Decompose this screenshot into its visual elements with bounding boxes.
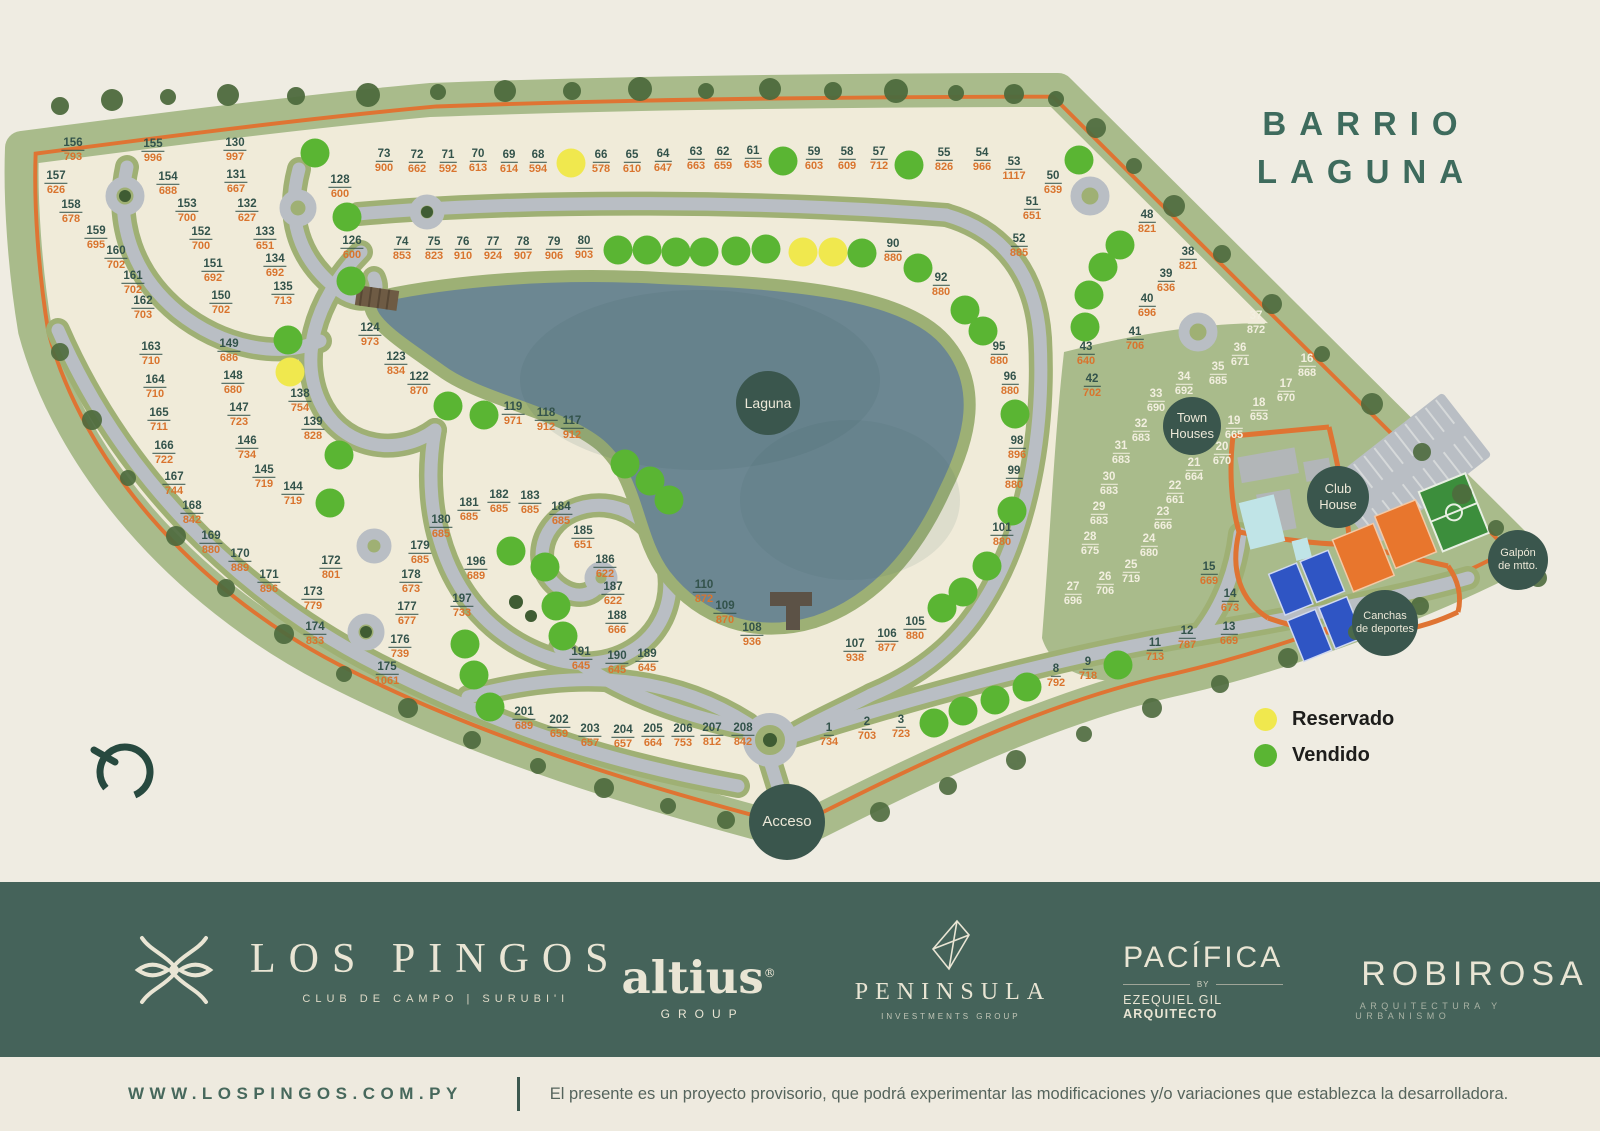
title-line1: BARRIO (1230, 100, 1490, 148)
lot-22: 22661 (1166, 476, 1184, 507)
status-dot-reserved (276, 358, 305, 387)
lot-162: 162703 (131, 291, 154, 322)
lot-172: 172801 (319, 551, 342, 582)
lot-203: 203657 (578, 719, 601, 750)
lot-173: 173779 (301, 582, 324, 613)
lot-8: 8792 (1047, 659, 1065, 690)
logo-pacifica: PACÍFICA BY EZEQUIEL GIL ARQUITECTO (1123, 941, 1283, 1021)
logo-robirosa: ROBIROSA ARQUITECTURA Y URBANISMO (1355, 955, 1588, 1021)
map-label-laguna: Laguna (736, 371, 800, 435)
lot-169: 169880 (199, 526, 222, 557)
lot-157: 157626 (44, 166, 67, 197)
robirosa-name: ROBIROSA (1355, 955, 1588, 994)
lot-35: 35685 (1209, 357, 1227, 388)
peninsula-kite-icon (927, 919, 971, 971)
status-dot-sold (604, 236, 633, 265)
map-label-canchas: Canchasde deportes (1352, 590, 1418, 656)
status-dot-sold (973, 552, 1002, 581)
page: 1567931559961309971576261546881316671286… (0, 0, 1600, 1131)
lot-105: 105880 (903, 612, 926, 643)
lot-75: 75823 (425, 232, 443, 263)
lot-207: 207812 (700, 718, 723, 749)
lot-3: 3723 (892, 710, 910, 741)
lot-123: 123834 (384, 347, 407, 378)
status-dot-sold (904, 254, 933, 283)
lot-98: 98896 (1008, 431, 1026, 462)
lot-124: 124973 (358, 318, 381, 349)
altius-name: altius (622, 951, 764, 1004)
status-dot-sold (325, 441, 354, 470)
lot-76: 76910 (454, 232, 472, 263)
lot-182: 182685 (487, 485, 510, 516)
brand-name: LOS PINGOS (250, 935, 622, 983)
lot-132: 132627 (235, 194, 258, 225)
divider (517, 1077, 520, 1111)
lot-39: 39636 (1157, 264, 1175, 295)
lot-170: 170889 (228, 544, 251, 575)
status-dot-sold (722, 237, 751, 266)
lot-171: 171896 (257, 565, 280, 596)
status-dot-sold (1075, 281, 1104, 310)
lot-153: 153700 (175, 194, 198, 225)
lot-184: 184685 (549, 497, 572, 528)
lot-190: 190645 (605, 646, 628, 677)
lot-15: 15669 (1200, 557, 1218, 588)
lot-92: 92880 (932, 268, 950, 299)
lot-134: 134692 (263, 249, 286, 280)
lot-183: 183685 (518, 486, 541, 517)
lot-64: 64647 (654, 144, 672, 175)
status-dot-sold (333, 203, 362, 232)
lot-155: 155996 (141, 134, 164, 165)
lot-196: 196689 (464, 552, 487, 583)
bottom-bar: WWW.LOSPINGOS.COM.PY El presente es un p… (0, 1057, 1600, 1131)
lot-181: 181685 (457, 493, 480, 524)
lot-176: 176739 (388, 630, 411, 661)
lot-55: 55826 (935, 143, 953, 174)
logo-altius: altius® GROUP (622, 958, 776, 1021)
lot-11: 11713 (1146, 633, 1164, 664)
lot-68: 68594 (529, 145, 547, 176)
status-dot-sold (769, 147, 798, 176)
lot-145: 145719 (252, 460, 275, 491)
lot-138: 138754 (288, 384, 311, 415)
status-dot-sold (301, 139, 330, 168)
lot-152: 152700 (189, 222, 212, 253)
status-dot-sold (274, 326, 303, 355)
lot-57: 57712 (870, 142, 888, 173)
lot-21: 21664 (1185, 453, 1203, 484)
lot-41: 41706 (1126, 322, 1144, 353)
lot-131: 131667 (224, 165, 247, 196)
status-dot-sold (1013, 673, 1042, 702)
lot-19: 19665 (1225, 411, 1243, 442)
lot-164: 164710 (143, 370, 166, 401)
lot-51: 51651 (1023, 192, 1041, 223)
status-dot-sold (531, 553, 560, 582)
logo-peninsula: PENINSULA INVESTMENTS GROUP (848, 919, 1051, 1021)
status-dot-reserved (789, 238, 818, 267)
lot-101: 101880 (990, 518, 1013, 549)
status-dot-sold (895, 151, 924, 180)
page-title: BARRIO LAGUNA (1230, 100, 1490, 196)
status-dot-sold (611, 450, 640, 479)
disclaimer-text: El presente es un proyecto provisorio, q… (550, 1085, 1508, 1104)
lot-13: 13669 (1220, 617, 1238, 648)
lot-62: 62659 (714, 142, 732, 173)
lot-31: 31683 (1112, 436, 1130, 467)
lot-78: 78907 (514, 232, 532, 263)
lot-9: 9718 (1079, 652, 1097, 683)
brand-tagline: CLUB DE CAMPO | SURUBI'I (250, 993, 622, 1005)
lot-77: 77924 (484, 232, 502, 263)
lot-147: 147723 (227, 398, 250, 429)
lot-43: 43640 (1077, 337, 1095, 368)
status-dot-sold (476, 693, 505, 722)
altius-sub: GROUP (653, 1007, 745, 1021)
status-dot-sold (434, 392, 463, 421)
sold-dot-icon (1254, 744, 1277, 767)
status-dot-sold (1001, 400, 1030, 429)
status-dot-reserved (819, 238, 848, 267)
status-dot-sold (633, 236, 662, 265)
map-label-galpon: Galpónde mtto. (1488, 530, 1548, 590)
status-dot-sold (1065, 146, 1094, 175)
lot-61: 61635 (744, 141, 762, 172)
status-dot-sold (542, 592, 571, 621)
lot-202: 202659 (547, 710, 570, 741)
pacifica-by: BY (1197, 980, 1210, 989)
lot-32: 32683 (1132, 414, 1150, 445)
lot-50: 50639 (1044, 166, 1062, 197)
status-dot-reserved (557, 149, 586, 178)
lot-72: 72662 (408, 145, 426, 176)
lot-128: 128600 (328, 170, 351, 201)
status-dot-sold (949, 578, 978, 607)
lot-38: 38821 (1179, 242, 1197, 273)
lot-96: 96880 (1001, 367, 1019, 398)
lot-208: 208842 (731, 718, 754, 749)
status-dot-sold (662, 238, 691, 267)
lot-109: 109870 (713, 596, 736, 627)
lot-149: 149686 (217, 334, 240, 365)
lot-66: 66578 (592, 145, 610, 176)
lot-90: 90880 (884, 234, 902, 265)
lot-24: 24680 (1140, 529, 1158, 560)
lot-70: 70613 (469, 144, 487, 175)
lot-135: 135713 (271, 277, 294, 308)
status-dot-sold (460, 661, 489, 690)
lot-69: 69614 (500, 145, 518, 176)
lot-174: 174833 (303, 617, 326, 648)
status-dot-sold (1104, 651, 1133, 680)
lot-107: 107938 (843, 634, 866, 665)
website-url: WWW.LOSPINGOS.COM.PY (128, 1084, 463, 1104)
lot-48: 48821 (1138, 205, 1156, 236)
lot-205: 205664 (641, 719, 664, 750)
lot-156: 156793 (61, 133, 84, 164)
status-dot-sold (655, 486, 684, 515)
status-dot-sold (920, 709, 949, 738)
lot-150: 150702 (209, 286, 232, 317)
peninsula-name: PENINSULA (848, 979, 1051, 1006)
lot-80: 80903 (575, 231, 593, 262)
lot-18: 18653 (1250, 393, 1268, 424)
lot-17: 17670 (1277, 374, 1295, 405)
lot-191: 191645 (569, 642, 592, 673)
lot-117: 117912 (561, 411, 584, 442)
status-dot-sold (752, 235, 781, 264)
altius-registered-mark: ® (764, 966, 776, 980)
lot-16: 16868 (1298, 349, 1316, 380)
lot-166: 166722 (152, 436, 175, 467)
lot-167: 167744 (162, 467, 185, 498)
lot-201: 201689 (512, 702, 535, 733)
status-dot-sold (470, 401, 499, 430)
lot-59: 59603 (805, 142, 823, 173)
los-pingos-flourish-icon (128, 924, 220, 1016)
lot-110: 110872 (693, 575, 716, 606)
lot-26: 26706 (1096, 567, 1114, 598)
lot-28: 28675 (1081, 527, 1099, 558)
lot-119: 119971 (502, 397, 525, 428)
lot-73: 73900 (375, 144, 393, 175)
status-dot-sold (848, 239, 877, 268)
lot-168: 168842 (180, 496, 203, 527)
lot-1: 1734 (820, 718, 838, 749)
lot-151: 151692 (201, 254, 224, 285)
lot-163: 163710 (139, 337, 162, 368)
lot-95: 95880 (990, 337, 1008, 368)
footer: LOS PINGOS CLUB DE CAMPO | SURUBI'I alti… (0, 882, 1600, 1057)
lot-99: 99880 (1005, 461, 1023, 492)
status-dot-sold (451, 630, 480, 659)
reserved-label: Reservado (1292, 708, 1394, 731)
pacifica-name: PACÍFICA (1123, 941, 1283, 975)
lot-33: 33690 (1147, 384, 1165, 415)
lot-36: 36671 (1231, 338, 1249, 369)
lot-165: 165711 (147, 403, 170, 434)
lot-54: 54966 (973, 143, 991, 174)
lot-34: 34692 (1175, 367, 1193, 398)
lot-29: 29683 (1090, 497, 1108, 528)
lot-148: 148680 (221, 366, 244, 397)
lot-126: 126600 (340, 231, 363, 262)
lot-180: 180685 (429, 510, 452, 541)
robirosa-sub: ARQUITECTURA Y URBANISMO (1355, 1001, 1588, 1021)
lot-139: 139828 (301, 412, 324, 443)
status-dot-sold (690, 238, 719, 267)
lot-206: 206753 (671, 719, 694, 750)
status-dot-sold (981, 686, 1010, 715)
lot-130: 130997 (223, 133, 246, 164)
legend-reserved-row: Reservado (1254, 708, 1394, 731)
lot-71: 71592 (439, 145, 457, 176)
lot-179: 179685 (408, 536, 431, 567)
partner-logos: altius® GROUP PENINSULA INVESTMENTS GROU… (622, 919, 1589, 1021)
lot-146: 146734 (235, 431, 258, 462)
lot-14: 14673 (1221, 584, 1239, 615)
lot-158: 158678 (59, 195, 82, 226)
sold-label: Vendido (1292, 744, 1370, 767)
lot-122: 122870 (407, 367, 430, 398)
lot-53: 531117 (1002, 152, 1025, 183)
map-label-town-houses: TownHouses (1163, 397, 1221, 455)
lot-63: 63663 (687, 142, 705, 173)
lot-30: 30683 (1100, 467, 1118, 498)
status-dot-sold (949, 697, 978, 726)
lot-108: 108936 (740, 618, 763, 649)
lot-25: 25719 (1122, 555, 1140, 586)
map-label-club-house: ClubHouse (1307, 466, 1369, 528)
lot-188: 188666 (605, 606, 628, 637)
lot-2: 2703 (858, 712, 876, 743)
lot-118: 118912 (535, 403, 558, 434)
lot-197: 197733 (450, 589, 473, 620)
map-label-acceso: Acceso (749, 784, 825, 860)
lot-204: 204657 (611, 720, 634, 751)
lot-58: 58609 (838, 142, 856, 173)
reserved-dot-icon (1254, 708, 1277, 731)
compass-icon (90, 737, 160, 807)
lot-79: 79906 (545, 232, 563, 263)
lot-12: 12787 (1178, 621, 1196, 652)
legend-sold-row: Vendido (1254, 744, 1394, 767)
lot-40: 40696 (1138, 289, 1156, 320)
lot-189: 189645 (635, 644, 658, 675)
lot-37: 37872 (1247, 306, 1265, 337)
lot-178: 178673 (399, 565, 422, 596)
legend: Reservado Vendido (1254, 708, 1394, 780)
lot-187: 187622 (601, 577, 624, 608)
status-dot-sold (337, 267, 366, 296)
peninsula-sub: INVESTMENTS GROUP (878, 1012, 1020, 1021)
brand-los-pingos: LOS PINGOS CLUB DE CAMPO | SURUBI'I (128, 924, 622, 1016)
status-dot-sold (316, 489, 345, 518)
lot-42: 42702 (1083, 369, 1101, 400)
status-dot-sold (1089, 253, 1118, 282)
lot-106: 106877 (875, 624, 898, 655)
lot-74: 74853 (393, 232, 411, 263)
lot-144: 144719 (281, 477, 304, 508)
title-line2: LAGUNA (1230, 148, 1490, 196)
status-dot-sold (497, 537, 526, 566)
pacifica-sub: EZEQUIEL GIL ARQUITECTO (1123, 993, 1283, 1021)
lot-177: 177677 (395, 597, 418, 628)
lot-65: 65610 (623, 145, 641, 176)
lot-175: 1751061 (375, 657, 399, 688)
lot-185: 185651 (571, 521, 594, 552)
lot-52: 52885 (1010, 229, 1028, 260)
lot-27: 27696 (1064, 577, 1082, 608)
